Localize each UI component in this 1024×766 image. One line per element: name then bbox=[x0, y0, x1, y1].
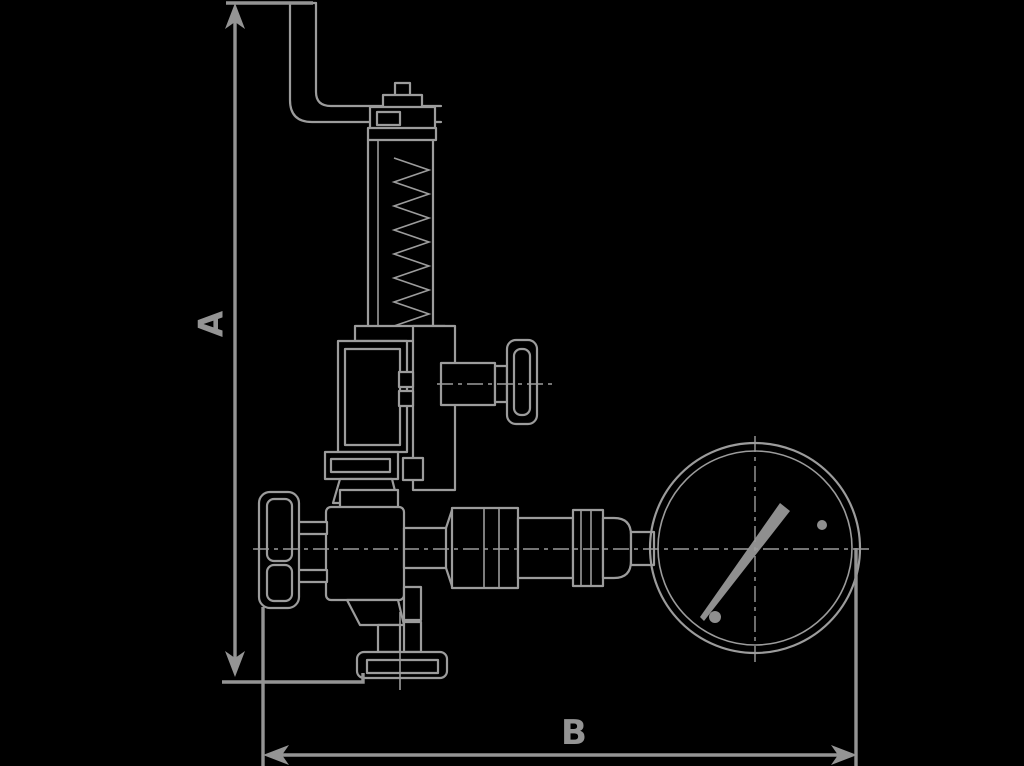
gauge-screw-dot bbox=[709, 611, 721, 623]
hinge-lug bbox=[399, 372, 413, 387]
stem-upper bbox=[298, 522, 327, 534]
drain-column bbox=[404, 587, 421, 620]
side-knob bbox=[507, 340, 537, 424]
reducer bbox=[603, 518, 631, 578]
hinge-lug bbox=[399, 391, 413, 406]
union-fitting bbox=[452, 508, 518, 588]
body-outlet-pipe bbox=[404, 528, 446, 568]
body-neck bbox=[340, 490, 398, 508]
outlet-neck bbox=[378, 625, 400, 652]
dimension-a-label: A bbox=[192, 310, 232, 337]
union-fitting-2 bbox=[573, 510, 603, 586]
stem-lower bbox=[298, 570, 327, 582]
connecting-pipe bbox=[518, 518, 573, 578]
valve-assembly-drawing: A B bbox=[0, 0, 1024, 766]
technical-drawing-canvas: A B bbox=[0, 0, 1024, 766]
gauge-screw-dot bbox=[817, 520, 827, 530]
handwheel bbox=[259, 492, 299, 608]
dimension-b-label: B bbox=[561, 713, 587, 753]
